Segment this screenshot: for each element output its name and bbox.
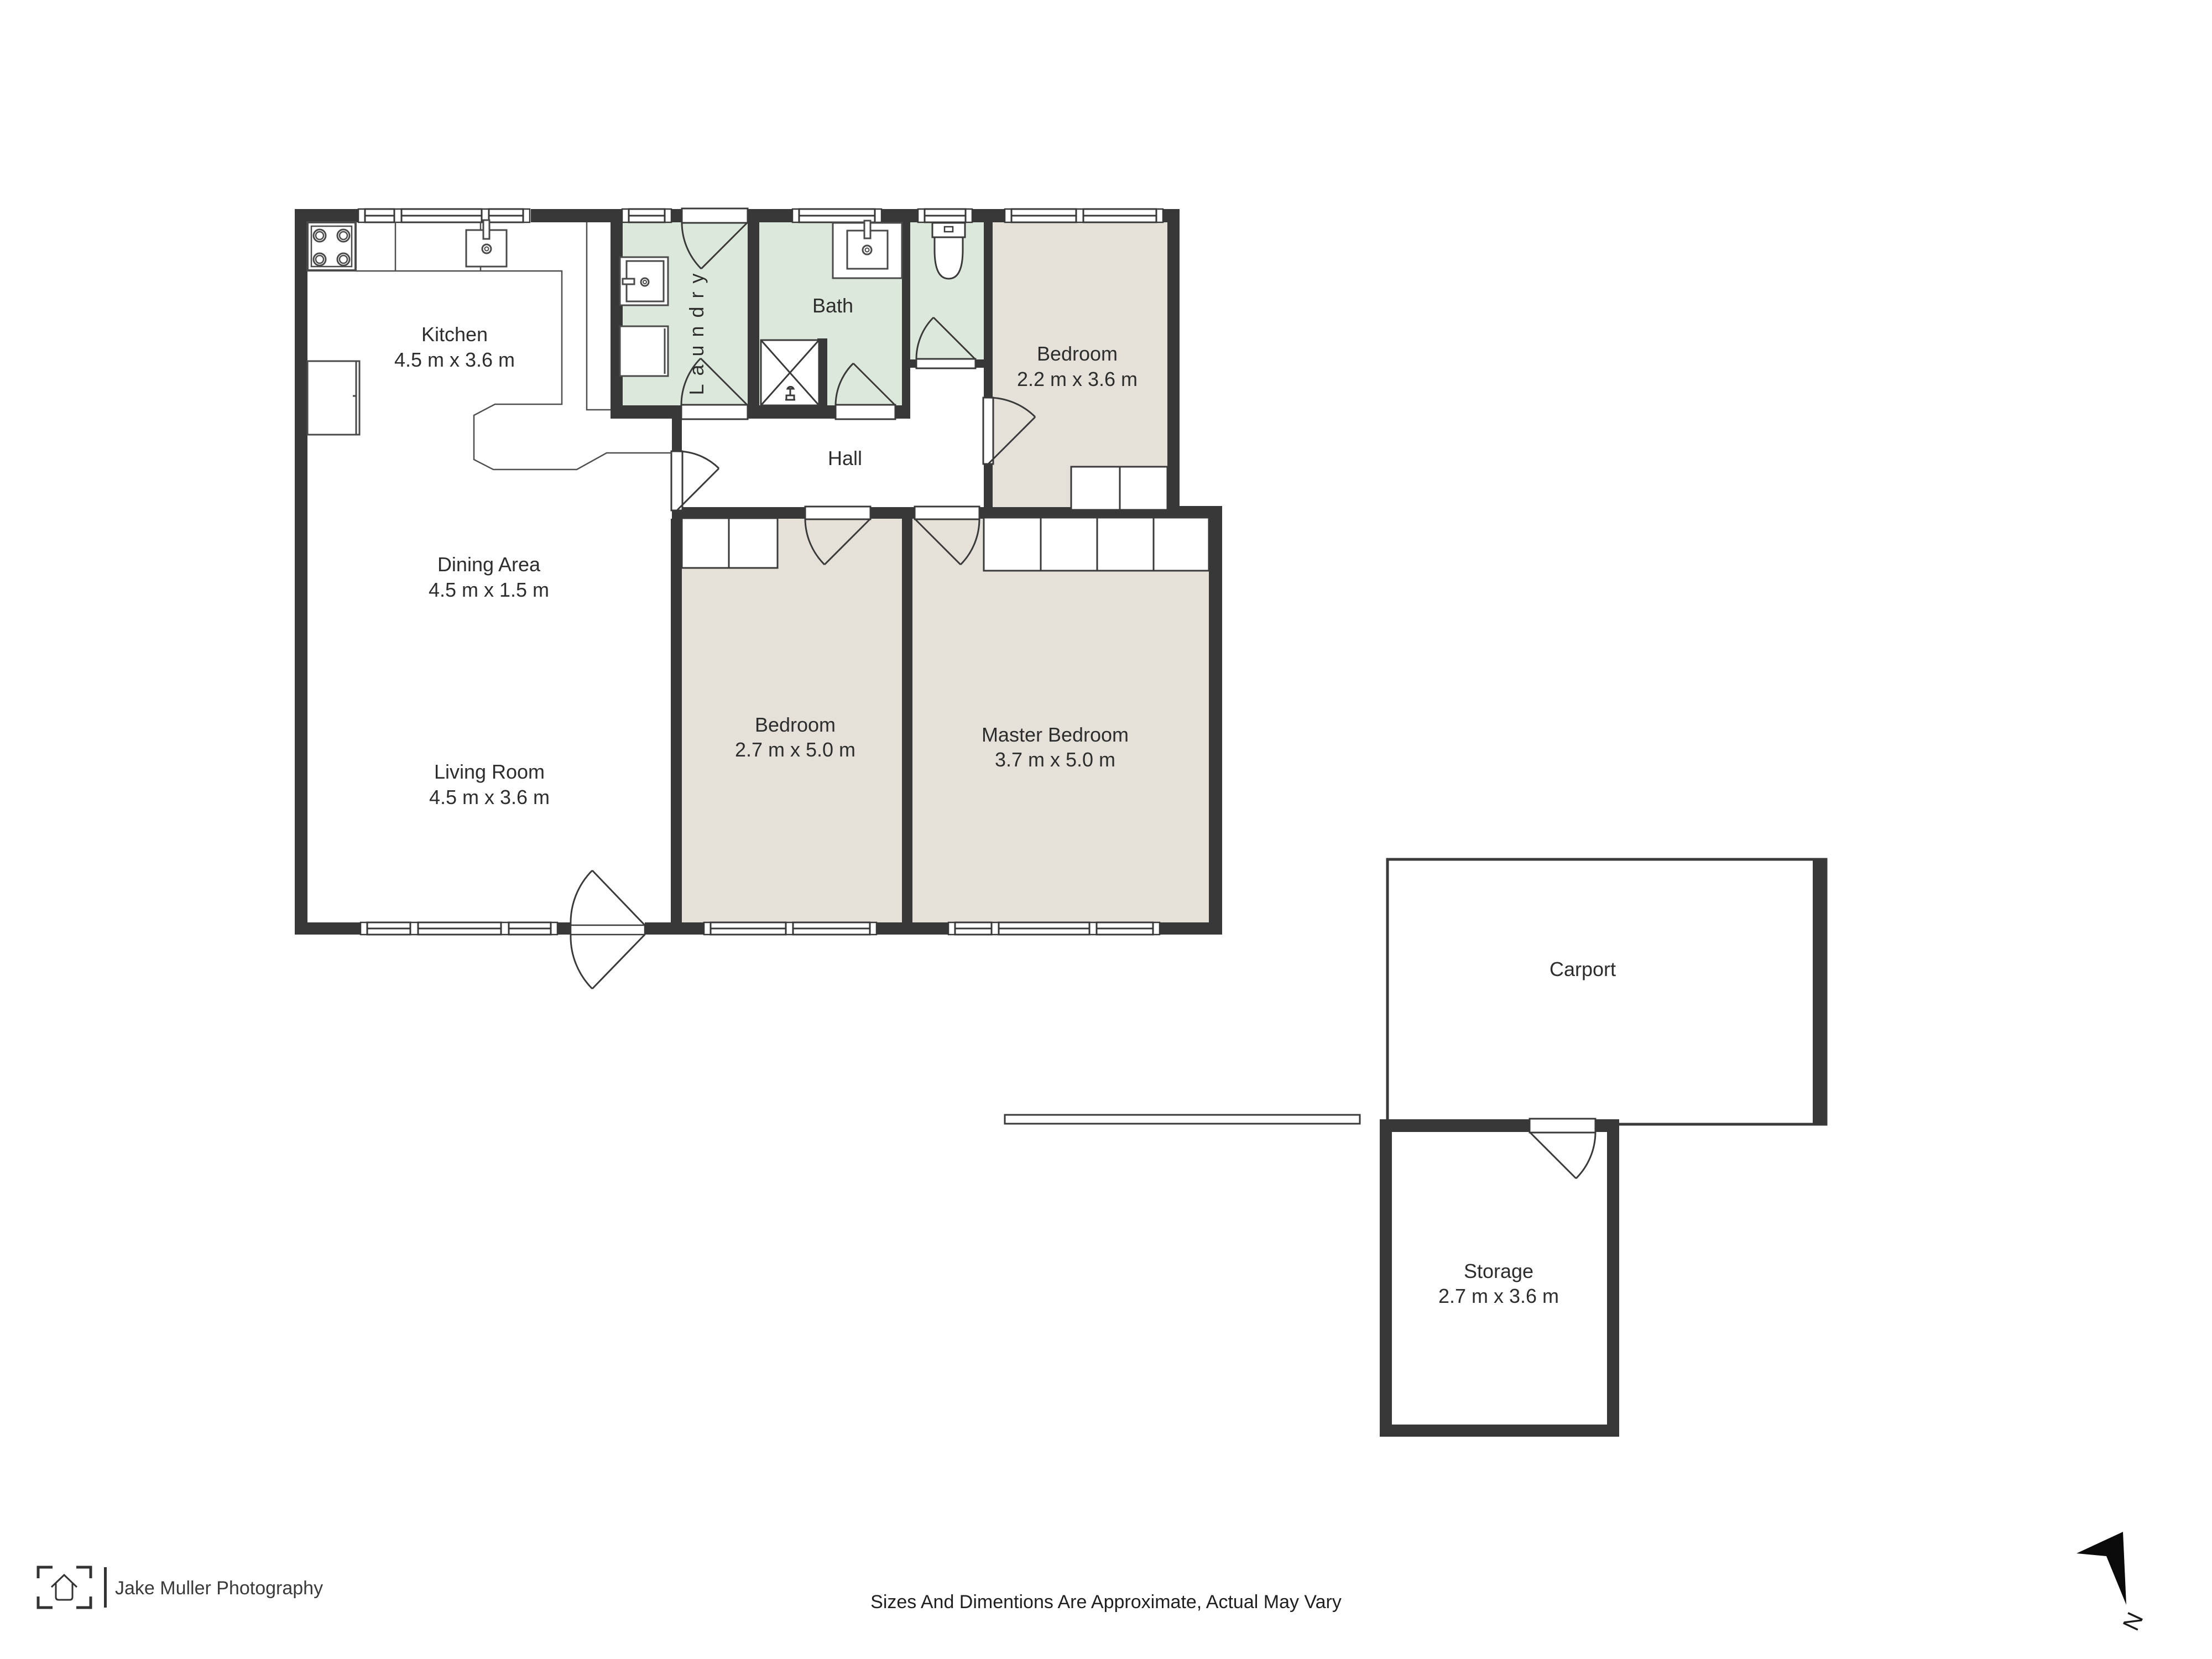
svg-text:4.5 m x 3.6 m: 4.5 m x 3.6 m — [429, 786, 550, 808]
svg-text:2.7 m x 3.6 m: 2.7 m x 3.6 m — [1438, 1285, 1559, 1307]
svg-text:4.5 m x 3.6 m: 4.5 m x 3.6 m — [394, 348, 515, 371]
svg-text:3.7 m x 5.0 m: 3.7 m x 5.0 m — [995, 748, 1115, 771]
svg-text:4.5 m x 1.5 m: 4.5 m x 1.5 m — [429, 578, 549, 601]
svg-text:Master Bedroom: Master Bedroom — [982, 723, 1129, 746]
svg-text:Bath: Bath — [812, 294, 853, 317]
svg-text:Living Room: Living Room — [434, 760, 545, 783]
svg-text:Kitchen: Kitchen — [421, 323, 488, 346]
svg-text:Dining Area: Dining Area — [437, 553, 541, 576]
svg-text:2.7 m x 5.0 m: 2.7 m x 5.0 m — [735, 738, 855, 761]
svg-text:Bedroom: Bedroom — [1037, 342, 1118, 365]
svg-text:Laundry: Laundry — [685, 265, 708, 395]
svg-text:Sizes And Dimentions Are Appro: Sizes And Dimentions Are Approximate, Ac… — [870, 1592, 1342, 1613]
svg-text:Jake Muller Photography: Jake Muller Photography — [115, 1578, 323, 1599]
svg-text:Bedroom: Bedroom — [755, 713, 836, 736]
svg-text:Hall: Hall — [828, 447, 862, 469]
svg-text:Storage: Storage — [1464, 1260, 1533, 1282]
svg-text:2.2 m x 3.6 m: 2.2 m x 3.6 m — [1017, 368, 1138, 390]
svg-text:Carport: Carport — [1550, 958, 1616, 980]
